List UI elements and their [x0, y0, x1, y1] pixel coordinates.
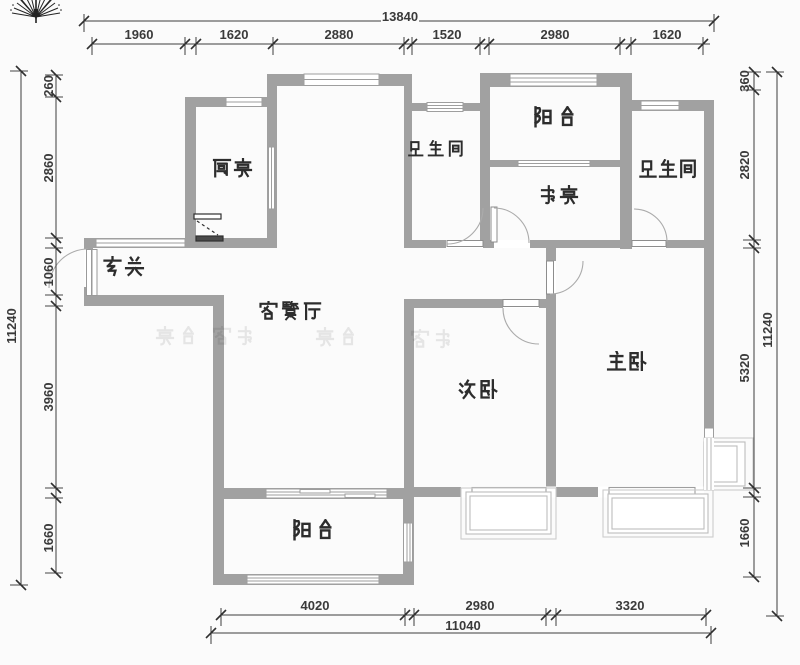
svg-text:360: 360 [737, 70, 752, 92]
svg-text:2860: 2860 [41, 154, 56, 183]
svg-text:1520: 1520 [433, 27, 462, 42]
svg-text:4020: 4020 [301, 598, 330, 613]
svg-text:1620: 1620 [653, 27, 682, 42]
svg-text:1620: 1620 [220, 27, 249, 42]
svg-text:2820: 2820 [737, 151, 752, 180]
svg-text:1960: 1960 [125, 27, 154, 42]
svg-text:3320: 3320 [616, 598, 645, 613]
svg-text:13840: 13840 [382, 9, 418, 24]
svg-text:1060: 1060 [41, 258, 56, 287]
svg-text:3960: 3960 [41, 383, 56, 412]
svg-text:1660: 1660 [41, 524, 56, 553]
svg-text:2980: 2980 [466, 598, 495, 613]
svg-text:11240: 11240 [760, 312, 775, 347]
svg-text:11240: 11240 [4, 308, 19, 343]
svg-text:11040: 11040 [445, 618, 480, 633]
svg-text:2980: 2980 [541, 27, 570, 42]
svg-text:1660: 1660 [737, 519, 752, 548]
svg-text:5320: 5320 [737, 354, 752, 383]
svg-text:260: 260 [41, 75, 56, 97]
svg-text:2880: 2880 [325, 27, 354, 42]
